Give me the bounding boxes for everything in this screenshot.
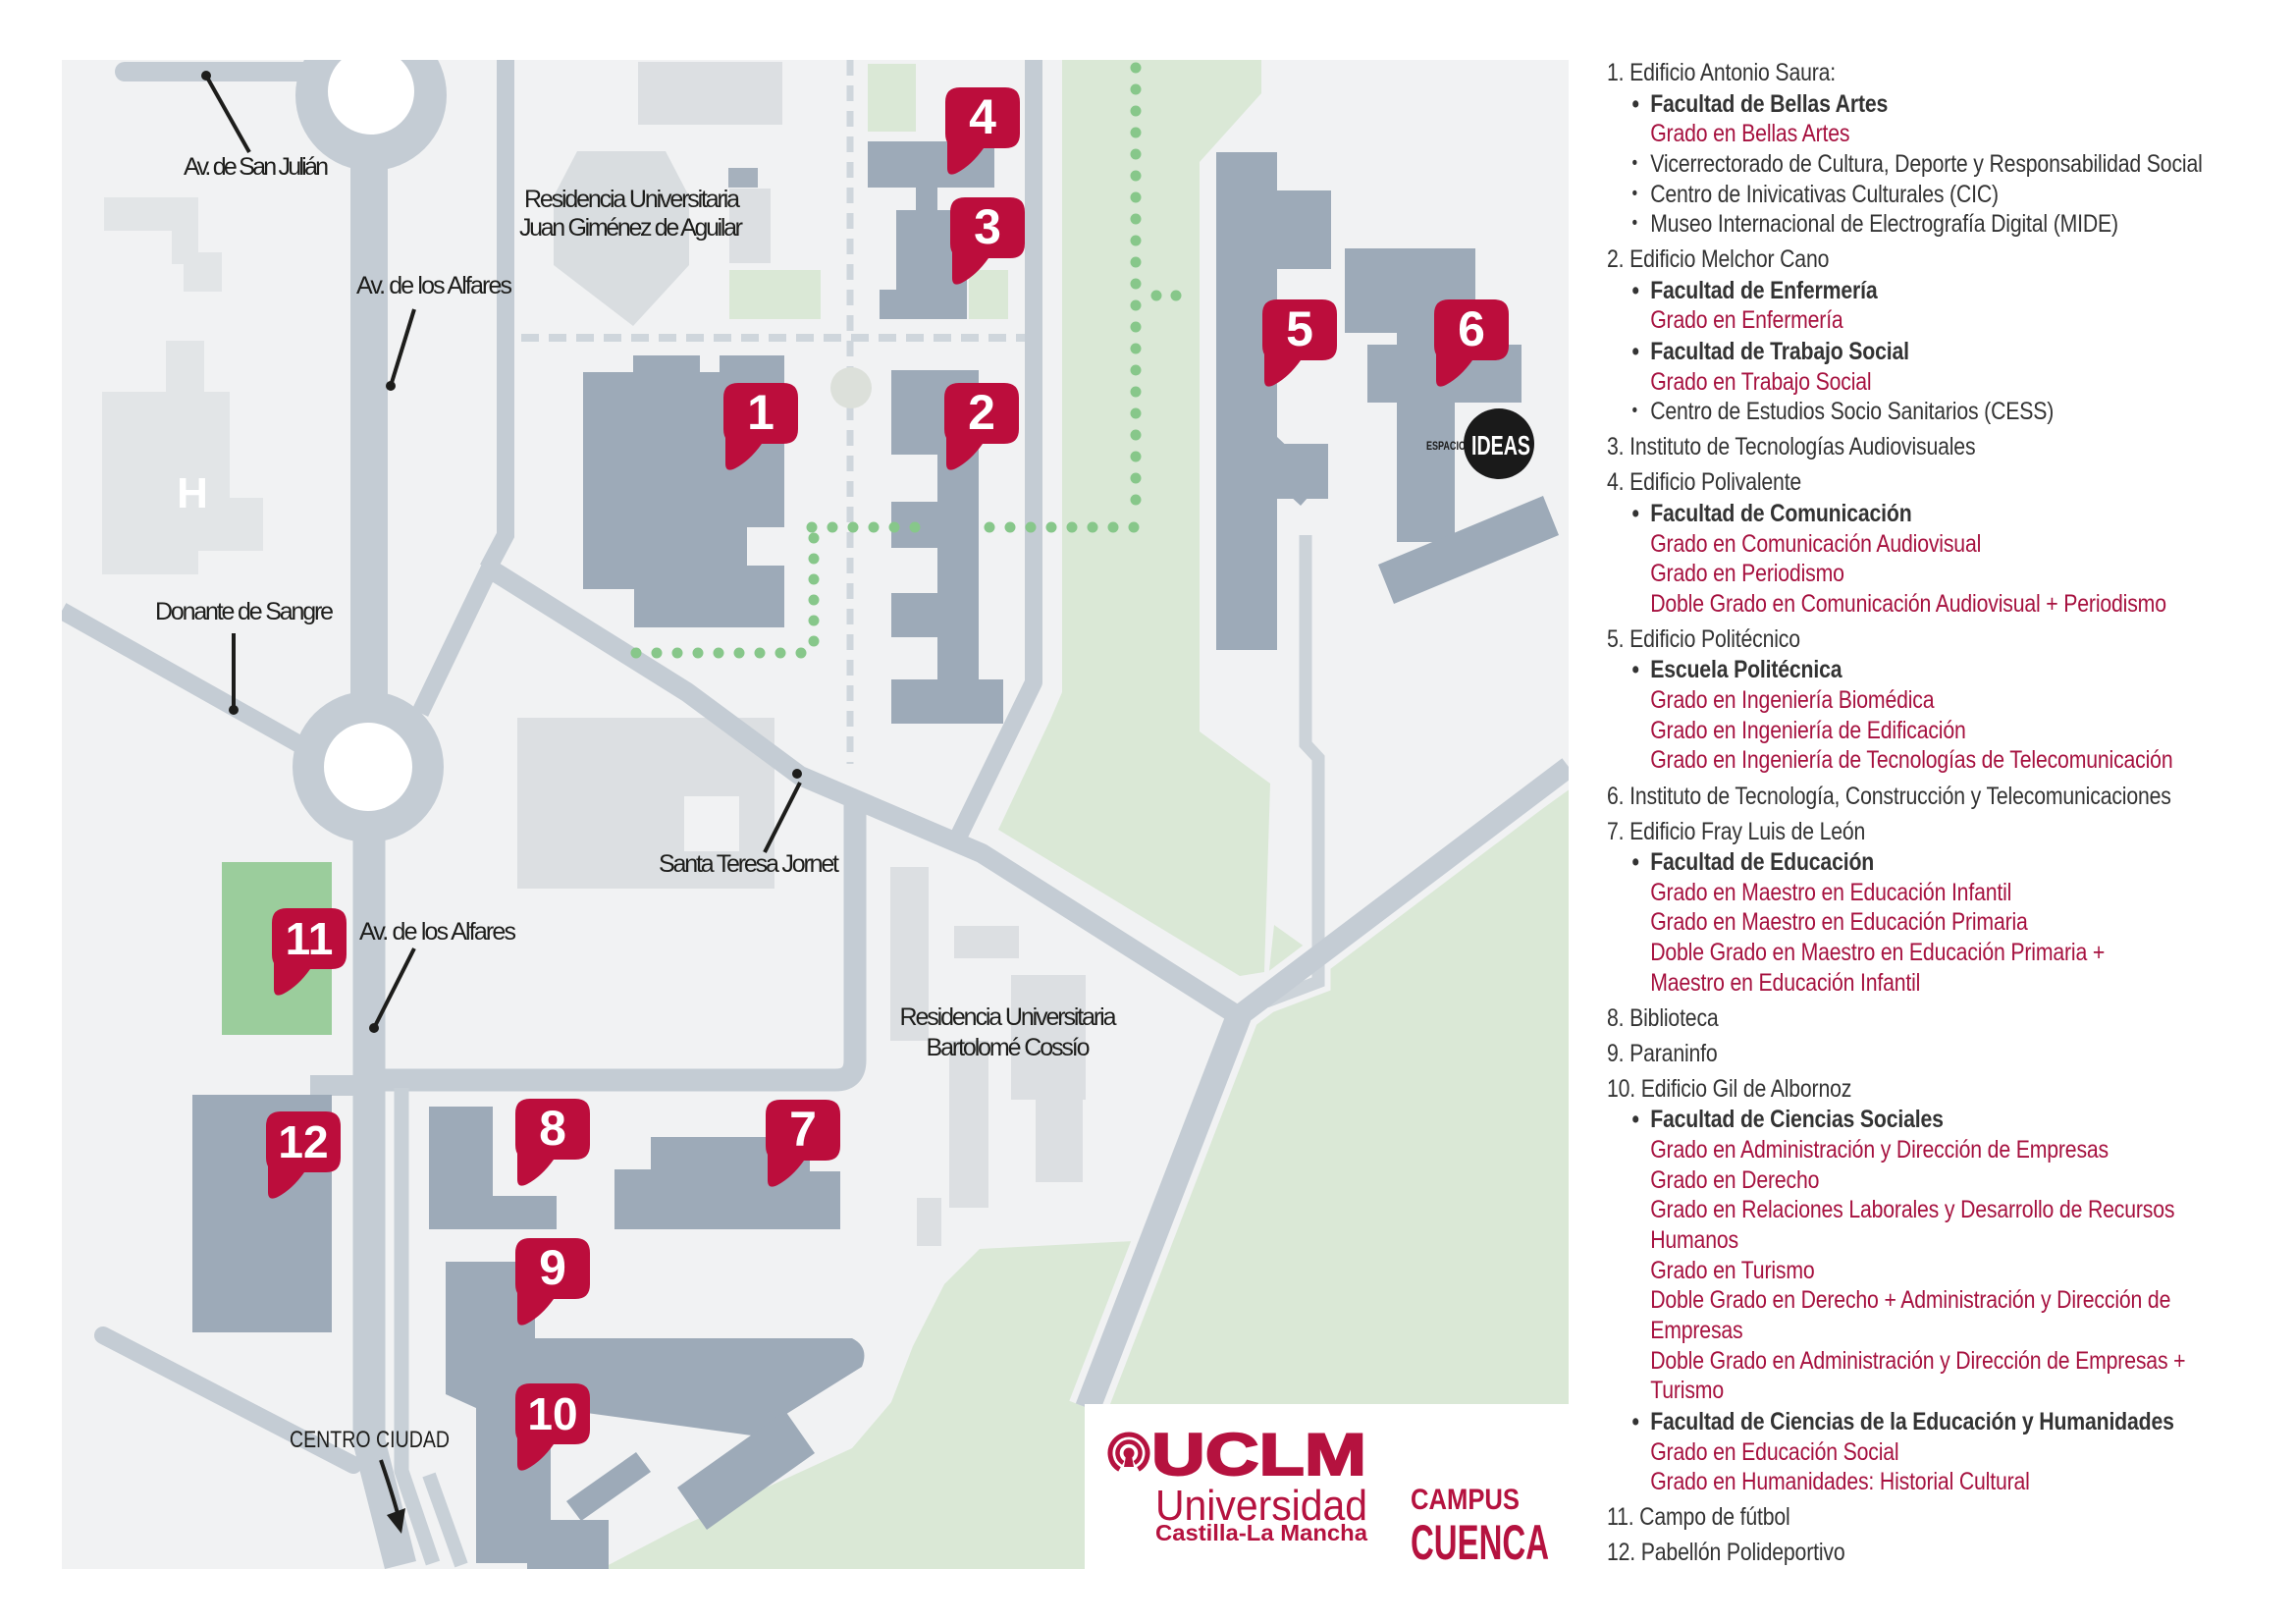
svg-text:Av. de los Alfares: Av. de los Alfares bbox=[356, 272, 512, 299]
svg-text:Bartolomé Cossío: Bartolomé Cossío bbox=[927, 1034, 1091, 1061]
svg-text:Santa Teresa Jornet: Santa Teresa Jornet bbox=[659, 850, 839, 878]
svg-text:CAMPUS: CAMPUS bbox=[1411, 1484, 1520, 1516]
svg-text:7: 7 bbox=[789, 1102, 817, 1157]
svg-text:Residencia Universitaria: Residencia Universitaria bbox=[900, 1003, 1117, 1031]
svg-text:6: 6 bbox=[1458, 301, 1485, 356]
svg-text:Residencia Universitaria: Residencia Universitaria bbox=[524, 186, 740, 213]
svg-text:2: 2 bbox=[968, 385, 995, 440]
svg-text:Juan Giménez de Aguilar: Juan Giménez de Aguilar bbox=[519, 214, 743, 242]
svg-text:11: 11 bbox=[286, 913, 334, 964]
svg-text:Castilla-La Mancha: Castilla-La Mancha bbox=[1155, 1520, 1367, 1545]
svg-text:CENTRO CIUDAD: CENTRO CIUDAD bbox=[290, 1427, 450, 1453]
svg-text:UCLM: UCLM bbox=[1151, 1422, 1366, 1488]
svg-text:IDEAS: IDEAS bbox=[1471, 430, 1530, 460]
svg-text:8: 8 bbox=[539, 1101, 566, 1156]
svg-text:5: 5 bbox=[1286, 301, 1313, 356]
svg-text:Av. de San Julián: Av. de San Julián bbox=[184, 153, 329, 181]
svg-text:3: 3 bbox=[974, 199, 1001, 254]
svg-text:Donante de Sangre: Donante de Sangre bbox=[155, 598, 334, 625]
svg-text:1: 1 bbox=[747, 385, 774, 440]
svg-text:CUENCA: CUENCA bbox=[1411, 1515, 1549, 1570]
svg-text:4: 4 bbox=[969, 89, 996, 144]
svg-text:Av. de los Alfares: Av. de los Alfares bbox=[359, 918, 516, 946]
svg-text:10: 10 bbox=[527, 1388, 577, 1439]
svg-text:ESPACIO: ESPACIO bbox=[1426, 439, 1466, 453]
svg-text:H: H bbox=[177, 469, 208, 517]
svg-text:9: 9 bbox=[539, 1240, 566, 1295]
svg-text:12: 12 bbox=[278, 1116, 328, 1167]
